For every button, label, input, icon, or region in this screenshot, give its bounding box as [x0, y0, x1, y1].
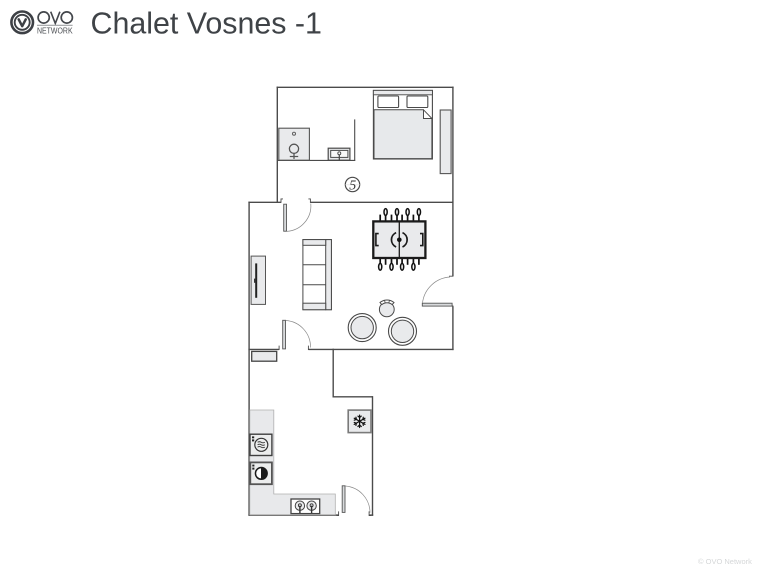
svg-text:5: 5 — [349, 179, 356, 194]
svg-text:© OVO Network: © OVO Network — [698, 557, 752, 566]
svg-text:NETWORK: NETWORK — [37, 26, 73, 35]
svg-text:Chalet Vosnes -1: Chalet Vosnes -1 — [91, 7, 322, 41]
